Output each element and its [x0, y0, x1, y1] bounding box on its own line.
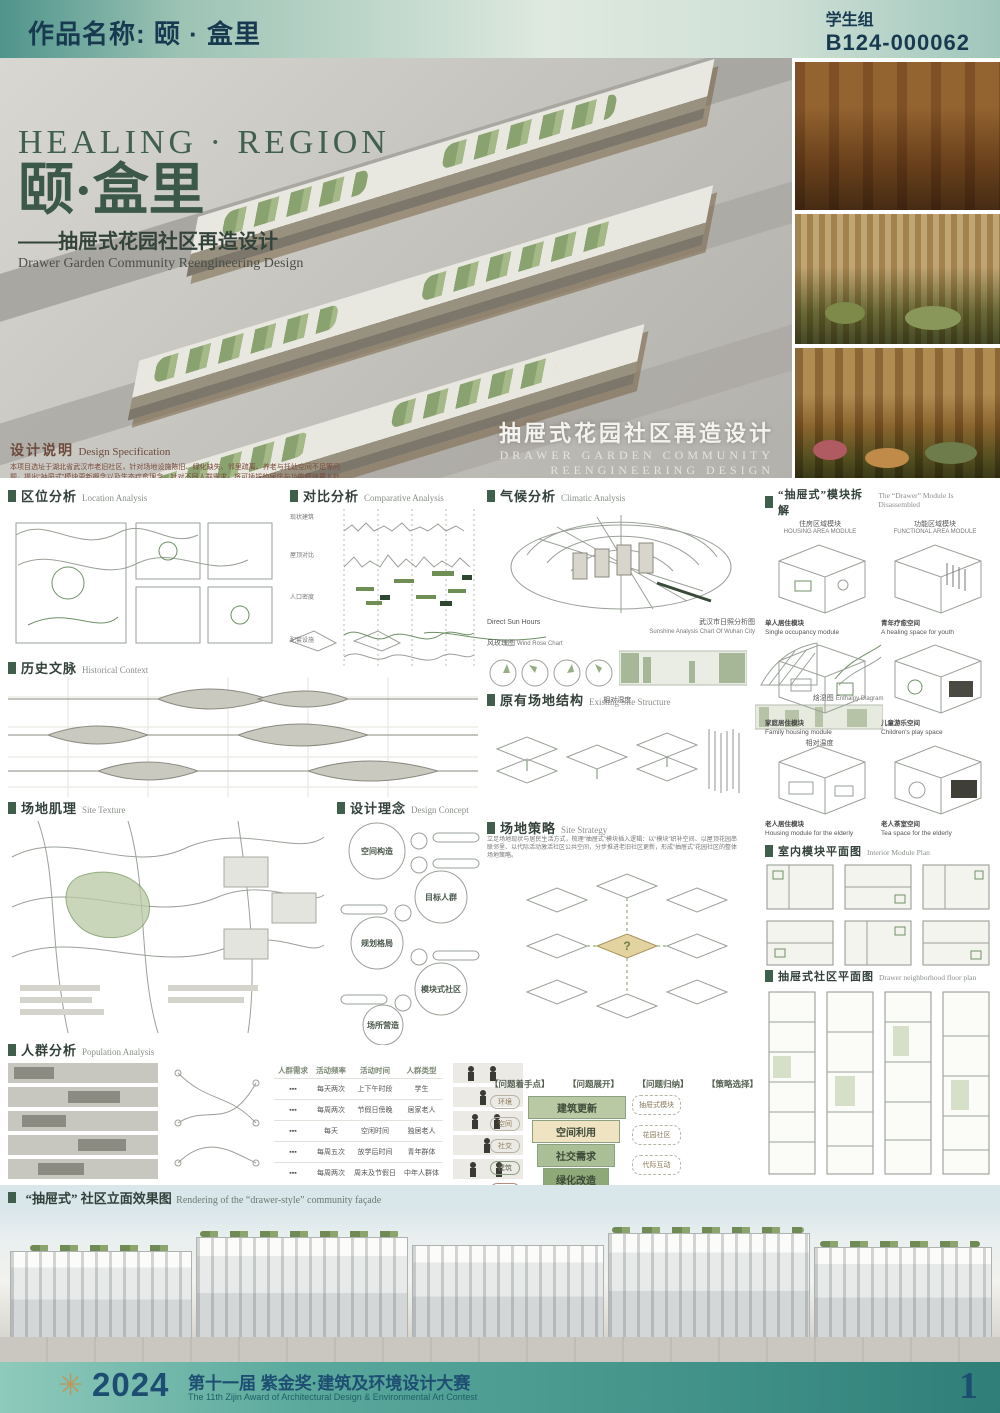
- section-drawer-plan: 抽屉式社区平面图 Drawer neighborhood floor plan: [765, 968, 995, 1185]
- roof-greenery: [200, 1231, 400, 1237]
- concept-circle-label: 空间构造: [361, 846, 393, 856]
- roof-greenery: [30, 1245, 180, 1251]
- module-caption-cn: 家庭居住模块: [765, 720, 804, 727]
- section-title-cn: “抽屉式”模块拆解: [778, 486, 873, 518]
- section-disassembly-heading: “抽屉式”模块拆解 The “Drawer” Module Is Disasse…: [765, 486, 995, 518]
- section-marker-icon: [487, 822, 495, 834]
- svg-text:规划格局: 规划格局: [361, 938, 393, 948]
- functional-head-cn: 功能区域模块: [894, 520, 977, 529]
- zijin-award-logo: ✳: [58, 1368, 83, 1403]
- sun-captions: Direct Sun Hours 武汉市日照分析图 Sunshine Analy…: [487, 618, 755, 637]
- section-comparative-heading: 对比分析 Comparative Analysis: [290, 486, 476, 505]
- module-caption-cn: 单人居住模块: [765, 620, 804, 627]
- strategy-body-text: 立足场地现状与居民生活方式，梳理“抽屉式”模块插入逻辑：以“模块”织补空间、以屋…: [487, 837, 737, 860]
- section-marker-icon: [765, 845, 773, 857]
- flow-pill: 空间: [490, 1117, 520, 1131]
- comparative-chart-sketch: [336, 509, 476, 669]
- comparative-row-label: 现状建筑: [290, 515, 330, 523]
- module-caption-en: Tea space for the elderly: [881, 830, 952, 837]
- housing-head-en: HOUSING AREA MODULE: [784, 529, 857, 537]
- wind-rose-label-en: Wind Rose Chart: [517, 641, 563, 647]
- module-caption-cn: 老人居住模块: [765, 821, 804, 828]
- section-title-cn: 原有场地结构: [500, 690, 584, 709]
- comparative-row-labels: 现状建筑 屋顶对比 人口密度 配套设施: [290, 509, 330, 669]
- wind-rose-sketch: [487, 655, 615, 691]
- section-existing: 原有场地结构 Existing Site Structure: [487, 690, 755, 810]
- section-interior-heading: 室内模块平面图 Interior Module Plan: [765, 843, 995, 859]
- project-title-en: HEALING · REGION: [18, 124, 390, 162]
- section-title-cn: 抽屉式社区平面图: [778, 968, 874, 984]
- population-network-sketch: [168, 1063, 264, 1181]
- module-axon-sketch: [881, 641, 989, 715]
- section-title-en: Historical Context: [82, 665, 148, 675]
- section-title-en: Population Analysis: [82, 1047, 154, 1057]
- comparative-row-label: 屋顶对比: [290, 553, 330, 561]
- pop-col-header: 人群需求: [274, 1063, 312, 1079]
- population-table: 人群需求 活动频率 活动时间 人群类型 ▪▪▪每天两次上下午时段学生 ▪▪▪每周…: [274, 1063, 443, 1183]
- project-title-cn: 颐·盒里: [18, 162, 390, 221]
- design-specification: 设计说明 Design Specification 本项目选址于湖北省武汉市老旧…: [10, 440, 340, 478]
- module-cell: 老人茶室空间Tea space for the elderly: [881, 742, 993, 839]
- elevation-building: [412, 1245, 604, 1338]
- population-table-row: ▪▪▪每周五次放学后时间青年群体: [274, 1142, 443, 1163]
- funnel-step: 建筑更新: [528, 1096, 626, 1119]
- footer-contest-title-cn: 第十一届 紫金奖·建筑及环境设计大赛: [188, 1369, 470, 1394]
- overlay-caption-cn: 抽屉式花园社区再造设计: [499, 416, 774, 448]
- section-marker-icon: [487, 490, 495, 502]
- population-photo-strips: [8, 1063, 158, 1181]
- ground-paving: [0, 1337, 1000, 1362]
- strategy-axon-sketch: ?: [487, 860, 755, 1040]
- sun-chart-label-cn: 武汉市日照分析图: [699, 619, 755, 626]
- comparative-row-label: 配套设施: [290, 638, 330, 646]
- page-number: 1: [959, 1364, 978, 1408]
- section-drawer-plan-heading: 抽屉式社区平面图 Drawer neighborhood floor plan: [765, 968, 995, 984]
- svg-text:模块式社区: 模块式社区: [421, 984, 461, 994]
- section-concept-heading: 设计理念 Design Concept: [337, 798, 483, 817]
- footer-bar: ✳ 2024 第十一届 紫金奖·建筑及环境设计大赛 The 11th Zijin…: [0, 1362, 1000, 1413]
- module-caption-en: Single occupancy module: [765, 629, 839, 636]
- section-marker-icon: [8, 1192, 16, 1203]
- flower-bed: [813, 440, 847, 460]
- section-title-en: Site Strategy: [561, 825, 607, 835]
- module-cell: 青年疗愈空间A healing space for youth: [881, 541, 993, 638]
- section-comparative: 对比分析 Comparative Analysis 现状建筑 屋顶对比 人口密度…: [290, 486, 476, 669]
- elevation-building: [608, 1233, 810, 1338]
- pop-col-header: 活动频率: [312, 1063, 350, 1079]
- flow-header: 【问题着手点】: [490, 1078, 550, 1090]
- header-bar: 作品名称: 颐 · 盒里 学生组 B124-000062: [0, 0, 1000, 58]
- section-marker-icon: [8, 490, 16, 502]
- module-caption-en: Family housing module: [765, 729, 832, 736]
- design-specification-heading: 设计说明 Design Specification: [10, 440, 340, 460]
- sun-chart-label: 武汉市日照分析图 Sunshine Analysis Chart Of Wuha…: [649, 618, 755, 637]
- hero-title-block: HEALING · REGION 颐·盒里 ——抽屉式花园社区再造设计 Draw…: [18, 124, 390, 272]
- section-texture: 场地肌理 Site Texture: [8, 798, 328, 1042]
- spec-body-text: 本项目选址于湖北省武汉市老旧社区，针对场地设施陈旧、绿化缺失、邻里疏离、养老与托…: [10, 463, 340, 478]
- population-table-row: ▪▪▪每周两次周末及节假日中年人群体: [274, 1163, 443, 1184]
- housing-module-head: 住房区域模块 HOUSING AREA MODULE: [784, 520, 857, 537]
- module-cell: 老人居住模块Housing module for the elderly: [765, 742, 877, 839]
- section-marker-icon: [8, 662, 16, 674]
- functional-head-en: FUNCTIONAL AREA MODULE: [894, 529, 977, 537]
- analysis-area: 区位分析 Location Analysis: [0, 478, 1000, 1185]
- module-caption-en: Housing module for the elderly: [765, 830, 853, 837]
- poster-board: 作品名称: 颐 · 盒里 学生组 B124-000062: [0, 0, 1000, 1413]
- planter-greenery: [905, 306, 961, 330]
- sun-path-dome-sketch: [487, 505, 755, 613]
- funnel-step: 社交需求: [537, 1144, 615, 1167]
- sun-chart-label-en: Sunshine Analysis Chart Of Wuhan City: [649, 629, 755, 635]
- section-marker-icon: [8, 802, 16, 814]
- module-axon-sketch: [765, 742, 873, 816]
- section-title-cn: 室内模块平面图: [778, 843, 862, 859]
- section-title-en: Interior Module Plan: [867, 848, 930, 857]
- section-historical: 历史文脉 Historical Context: [8, 658, 478, 802]
- flow-pill: 环境: [490, 1095, 520, 1109]
- indoor-garden-photo: [795, 348, 1000, 478]
- section-title-en: Drawer neighborhood floor plan: [879, 973, 976, 982]
- elevation-building: [196, 1237, 408, 1338]
- flow-outcome: 代际互动: [632, 1155, 681, 1175]
- drawer-plan-strips-sketch: [765, 984, 993, 1180]
- section-marker-icon: [8, 1044, 16, 1056]
- entry-code: B124-000062: [826, 30, 970, 56]
- work-title: 作品名称: 颐 · 盒里: [28, 14, 261, 51]
- pop-col-header: 活动时间: [350, 1063, 400, 1079]
- section-disassembly: “抽屉式”模块拆解 The “Drawer” Module Is Disasse…: [765, 486, 995, 838]
- section-concept: 设计理念 Design Concept 空间构造 目标人群 规划格局 模块式社区…: [337, 798, 483, 1050]
- concept-bubble-sketch: 空间构造 目标人群 规划格局 模块式社区 场所营造: [337, 817, 483, 1045]
- roof-greenery: [612, 1227, 804, 1233]
- module-caption-en: A healing space for youth: [881, 629, 954, 636]
- location-maps-sketch: [8, 505, 280, 655]
- module-axon-sketch: [765, 641, 873, 715]
- elevation-building: [814, 1247, 992, 1338]
- group-label: 学生组: [826, 6, 970, 30]
- roof-garden: [421, 219, 617, 302]
- comparative-chart-wrap: 现状建筑 屋顶对比 人口密度 配套设施: [290, 509, 476, 669]
- section-title-cn: 区位分析: [21, 486, 77, 505]
- module-cell: 单人居住模块Single occupancy module: [765, 541, 877, 638]
- direct-sun-hours-label: Direct Sun Hours: [487, 618, 540, 637]
- population-table-row: ▪▪▪每天两次上下午时段学生: [274, 1079, 443, 1100]
- facade-label-cn: “抽屉式” 社区立面效果图: [25, 1191, 171, 1206]
- project-subtitle-cn: ——抽屉式花园社区再造设计: [18, 225, 390, 254]
- module-caption-cn: 儿童游乐空间: [881, 720, 920, 727]
- section-title-cn: 场地策略: [500, 818, 556, 837]
- comparative-row-label: 人口密度: [290, 595, 330, 603]
- historical-timeline-sketch: [8, 677, 478, 797]
- footer-contest-title-en: The 11th Zijin Award of Architectural De…: [188, 1392, 477, 1402]
- flow-pill-column: 环境 空间 社交 建筑 疗愈: [490, 1095, 520, 1197]
- interior-colonnade-photo: [795, 62, 1000, 210]
- footer-year: 2024: [92, 1366, 169, 1404]
- section-title-cn: 历史文脉: [21, 658, 77, 677]
- wind-rose-label-cn: 风玫瑰图: [487, 640, 515, 647]
- svg-text:场所营造: 场所营造: [367, 1020, 399, 1030]
- section-title-en: The “Drawer” Module Is Disassembled: [878, 491, 995, 509]
- site-texture-map-sketch: [8, 817, 328, 1037]
- section-existing-heading: 原有场地结构 Existing Site Structure: [487, 690, 755, 709]
- facade-label-en: Rendering of the “drawer-style” communit…: [176, 1195, 381, 1206]
- facade-label: “抽屉式” 社区立面效果图 Rendering of the “drawer-s…: [8, 1188, 381, 1208]
- planter-greenery: [825, 302, 865, 324]
- flower-bed: [925, 442, 977, 464]
- section-title-cn: 设计理念: [350, 798, 406, 817]
- functional-module-head: 功能区域模块 FUNCTIONAL AREA MODULE: [894, 520, 977, 537]
- section-marker-icon: [290, 490, 298, 502]
- flow-header: 【策略选择】: [707, 1078, 758, 1090]
- existing-structure-sketch: [487, 709, 755, 805]
- section-marker-icon: [765, 970, 773, 982]
- section-strategy: 场地策略 Site Strategy 立足场地现状与居民生活方式，梳理“抽屉式”…: [487, 818, 759, 1045]
- module-caption-cn: 青年疗愈空间: [881, 620, 920, 627]
- flow-header: 【问题展开】: [568, 1078, 619, 1090]
- svg-text:目标人群: 目标人群: [425, 892, 457, 902]
- module-axon-sketch: [765, 541, 873, 615]
- roof-greenery: [820, 1241, 980, 1247]
- svg-text:?: ?: [623, 939, 630, 953]
- courtyard-planter-photo: [795, 214, 1000, 344]
- section-marker-icon: [765, 496, 773, 508]
- spec-label-cn: 设计说明: [10, 442, 74, 458]
- flow-headers: 【问题着手点】 【问题展开】 【问题归纳】 【策略选择】: [490, 1078, 758, 1090]
- hero-rendering: HEALING · REGION 颐·盒里 ——抽屉式花园社区再造设计 Draw…: [0, 58, 792, 478]
- overlay-caption-en-2: REENGINEERING DESIGN: [499, 463, 774, 478]
- spec-label-en: Design Specification: [78, 446, 170, 458]
- project-subtitle-en: Drawer Garden Community Reengineering De…: [18, 256, 390, 272]
- flow-pill: 建筑: [490, 1161, 520, 1175]
- hero-overlay-caption: 抽屉式花园社区再造设计 DRAWER GARDEN COMMUNITY REEN…: [499, 416, 774, 478]
- flow-outcome: 花园社区: [632, 1125, 681, 1145]
- section-title-en: Design Concept: [411, 805, 469, 815]
- section-marker-icon: [487, 694, 495, 706]
- module-cell: 儿童游乐空间Children's play space: [881, 641, 993, 738]
- section-population-heading: 人群分析 Population Analysis: [8, 1040, 758, 1059]
- interior-plans-sketch: [765, 859, 993, 975]
- module-grid: 单人居住模块Single occupancy module 青年疗愈空间A he…: [765, 541, 995, 839]
- roof-garden: [153, 304, 339, 384]
- entry-info: 学生组 B124-000062: [826, 6, 970, 56]
- facade-rendering-band: “抽屉式” 社区立面效果图 Rendering of the “drawer-s…: [0, 1185, 1000, 1362]
- section-title-en: Climatic Analysis: [561, 493, 625, 503]
- section-title-en: Comparative Analysis: [364, 493, 444, 503]
- section-strategy-heading: 场地策略 Site Strategy: [487, 818, 759, 837]
- module-axon-sketch: [881, 541, 989, 615]
- flow-outcomes: 抽屉式模块 花园社区 代际互动: [632, 1095, 681, 1175]
- flow-pill: 社交: [490, 1139, 520, 1153]
- population-table-row: ▪▪▪每周两次节假日傍晚居家老人: [274, 1100, 443, 1121]
- module-caption-cn: 老人茶室空间: [881, 821, 920, 828]
- section-title-en: Site Texture: [82, 805, 125, 815]
- elevation-building: [10, 1251, 192, 1338]
- module-axon-sketch: [881, 742, 989, 816]
- humidity-strip-sketch: [619, 649, 747, 691]
- module-cell: 家庭居住模块Family housing module: [765, 641, 877, 738]
- section-title-cn: 场地肌理: [21, 798, 77, 817]
- section-marker-icon: [337, 802, 345, 814]
- population-table-row: ▪▪▪每天空闲时间独居老人: [274, 1121, 443, 1142]
- section-historical-heading: 历史文脉 Historical Context: [8, 658, 478, 677]
- funnel-step: 空间利用: [532, 1120, 620, 1143]
- module-column-heads: 住房区域模块 HOUSING AREA MODULE 功能区域模块 FUNCTI…: [765, 520, 995, 537]
- flow-outcome: 抽屉式模块: [632, 1095, 681, 1115]
- pop-col-header: 人群类型: [400, 1063, 443, 1079]
- wind-rose-label: 风玫瑰图 Wind Rose Chart: [487, 639, 747, 649]
- flower-bed: [865, 448, 909, 468]
- section-texture-heading: 场地肌理 Site Texture: [8, 798, 328, 817]
- module-caption-en: Children's play space: [881, 729, 943, 736]
- overlay-caption-en-1: DRAWER GARDEN COMMUNITY: [499, 448, 774, 463]
- flow-header: 【问题归纳】: [637, 1078, 688, 1090]
- housing-head-cn: 住房区域模块: [784, 520, 857, 529]
- section-title-en: Existing Site Structure: [589, 697, 671, 707]
- section-title-cn: 气候分析: [500, 486, 556, 505]
- section-title-cn: 人群分析: [21, 1040, 77, 1059]
- section-title-en: Location Analysis: [82, 493, 147, 503]
- section-interior: 室内模块平面图 Interior Module Plan: [765, 843, 995, 980]
- section-title-cn: 对比分析: [303, 486, 359, 505]
